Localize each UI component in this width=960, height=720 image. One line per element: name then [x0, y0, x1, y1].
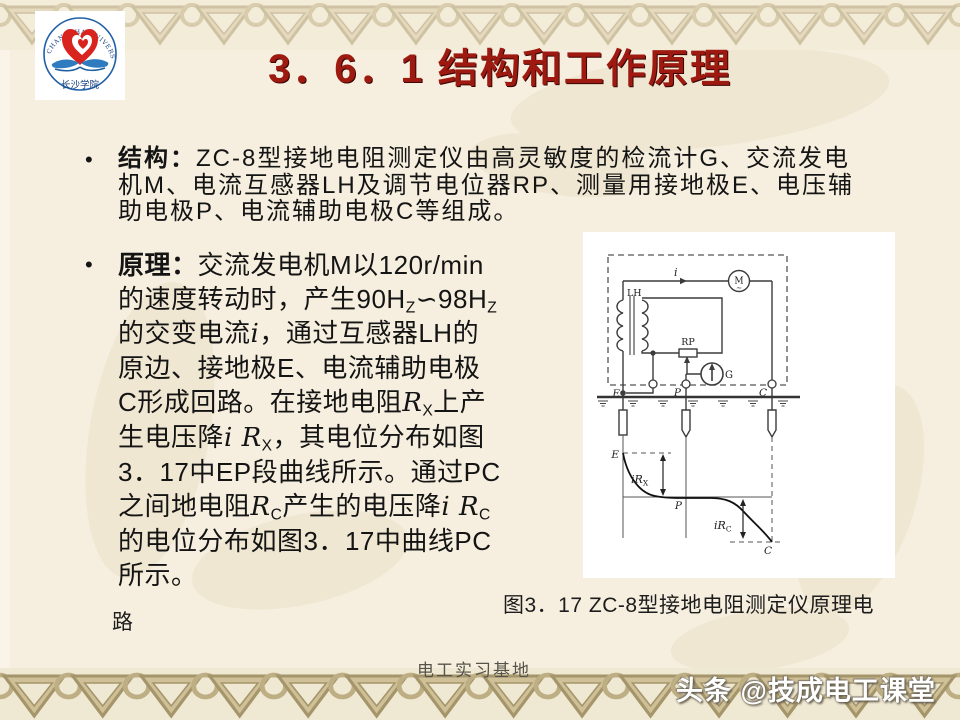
university-logo: CHANGSHA UNIVERSITY 长沙学院	[35, 11, 125, 100]
figure-caption: 图3．17 ZC-8型接地电阻测定仪原理电	[503, 589, 874, 619]
left-border-strip	[0, 0, 10, 720]
svg-text:G: G	[725, 370, 733, 381]
current-transformer-lh	[617, 296, 648, 355]
current-arrow	[680, 278, 687, 285]
label-lh: LH	[627, 288, 642, 299]
ground-surface	[597, 397, 800, 406]
slide: { "title": "3．6．1 结构和工作原理", "logo": { "a…	[0, 0, 960, 720]
label-irx: iRX	[631, 473, 649, 488]
logo-cn-text: 长沙学院	[61, 79, 100, 91]
junction-dot	[650, 350, 655, 355]
university-logo-emblem: CHANGSHA UNIVERSITY 长沙学院	[35, 11, 125, 100]
slide-title: 3．6．1 结构和工作原理	[150, 36, 850, 94]
label-curve-e: E	[610, 449, 619, 461]
galvanometer-g: G	[701, 363, 733, 385]
bullet-text-structure: 结构：ZC-8型接地电阻测定仪由高灵敏度的检流计G、交流发电机M、电流互感器LH…	[118, 146, 918, 226]
circuit-diagram: LH i M ∼ RP G E P C	[583, 232, 895, 578]
irx-arrow	[660, 454, 666, 496]
footer-text: 电工实习基地	[417, 656, 531, 681]
irc-arrow	[740, 499, 746, 539]
instrument-dashed-boundary	[608, 255, 787, 385]
bullet-marker: •	[85, 252, 93, 278]
label-terminal-e: E	[611, 388, 620, 400]
label-irc: iRC	[714, 519, 732, 534]
svg-text:∼: ∼	[736, 284, 742, 292]
bullet-text-principle: 原理：交流发电机M以120r/min的速度转动时，产生90HZ∽98HZ的交变电…	[118, 248, 518, 592]
watermark-badge: 头条 @技成电工课堂	[676, 669, 936, 708]
generator-symbol-m: M ∼	[729, 271, 750, 293]
label-curve-c: C	[764, 545, 772, 557]
label-current-i: i	[674, 266, 678, 279]
figure-panel: LH i M ∼ RP G E P C	[583, 232, 895, 578]
svg-text:RP: RP	[681, 337, 695, 348]
label-curve-p: P	[674, 500, 683, 512]
bullet-marker: •	[85, 147, 93, 173]
figure-caption-wrap: 路	[112, 606, 133, 636]
circuit-wires	[623, 281, 772, 397]
potential-distribution: E P C iRX iRC	[610, 435, 784, 557]
e-junction-dot	[620, 390, 626, 396]
potentiometer-rp: RP	[679, 337, 697, 357]
